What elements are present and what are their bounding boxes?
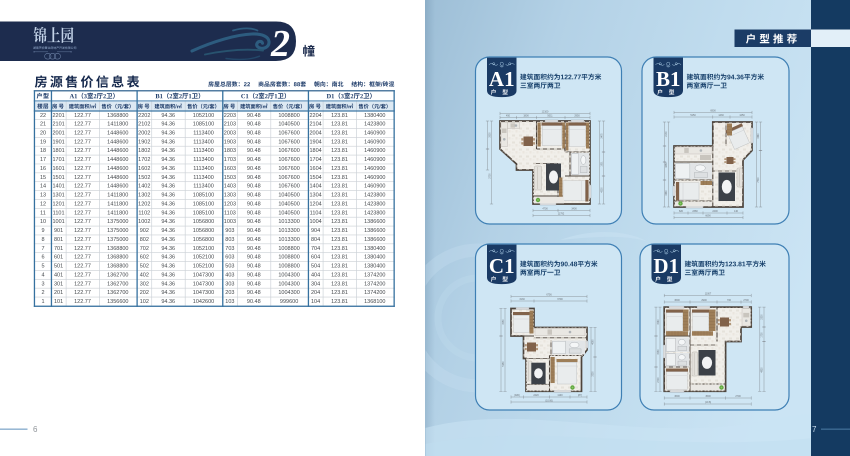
svg-text:122.77: 122.77 <box>74 264 91 270</box>
svg-text:122.77: 122.77 <box>74 219 91 225</box>
svg-text:501: 501 <box>54 264 63 270</box>
svg-text:122.77: 122.77 <box>74 246 91 252</box>
svg-text:1113400: 1113400 <box>193 175 214 181</box>
svg-text:94.36: 94.36 <box>161 175 175 181</box>
svg-text:402: 402 <box>140 272 149 278</box>
svg-text:1800: 1800 <box>523 115 529 118</box>
svg-text:1013300: 1013300 <box>278 219 299 225</box>
svg-text:1004300: 1004300 <box>278 290 299 296</box>
svg-text:1368800: 1368800 <box>107 113 128 119</box>
svg-text:2002: 2002 <box>138 131 150 137</box>
svg-text:1362700: 1362700 <box>107 272 128 278</box>
svg-text:4700: 4700 <box>542 207 548 210</box>
svg-text:1: 1 <box>41 299 44 305</box>
svg-text:1602: 1602 <box>138 166 150 172</box>
svg-text:1047300: 1047300 <box>193 281 214 287</box>
svg-text:123.81: 123.81 <box>331 255 348 261</box>
svg-text:5150: 5150 <box>690 114 696 117</box>
svg-text:1460900: 1460900 <box>364 157 385 163</box>
svg-text:1362700: 1362700 <box>107 281 128 287</box>
svg-text:D1: D1 <box>653 254 679 278</box>
svg-text:1700: 1700 <box>762 332 764 338</box>
svg-text:122.77: 122.77 <box>74 184 91 190</box>
svg-text:103: 103 <box>225 299 234 305</box>
svg-text:12100: 12100 <box>542 110 549 113</box>
svg-text:123.81: 123.81 <box>331 290 348 296</box>
svg-text:C1: C1 <box>489 254 515 278</box>
svg-text:4380: 4380 <box>666 162 668 168</box>
svg-text:2: 2 <box>270 23 290 65</box>
svg-text:2103: 2103 <box>224 122 236 128</box>
svg-text:123.81: 123.81 <box>331 281 348 287</box>
svg-text:1801: 1801 <box>52 148 64 154</box>
svg-text:1067600: 1067600 <box>278 131 299 137</box>
svg-text:94.36: 94.36 <box>161 237 175 243</box>
svg-text:450: 450 <box>506 115 511 118</box>
svg-text:1067600: 1067600 <box>278 157 299 163</box>
svg-text:1703: 1703 <box>224 157 236 163</box>
svg-text:1423800: 1423800 <box>364 201 385 207</box>
svg-text:122.77: 122.77 <box>74 255 91 261</box>
svg-text:503: 503 <box>225 264 234 270</box>
svg-text:1448600: 1448600 <box>107 166 128 172</box>
svg-text:1380400: 1380400 <box>364 113 385 119</box>
svg-text:122.77: 122.77 <box>74 228 91 234</box>
svg-text:3130: 3130 <box>519 298 525 301</box>
svg-text:1380400: 1380400 <box>364 246 385 252</box>
svg-text:1101: 1101 <box>53 210 65 216</box>
svg-text:17: 17 <box>40 157 46 163</box>
svg-text:904: 904 <box>311 228 320 234</box>
svg-text:702: 702 <box>140 246 149 252</box>
svg-text:804: 804 <box>311 237 320 243</box>
svg-text:1411800: 1411800 <box>107 193 128 199</box>
svg-text:94.36: 94.36 <box>161 113 175 119</box>
svg-text:101: 101 <box>54 299 63 305</box>
svg-text:123.81: 123.81 <box>331 139 348 145</box>
svg-text:94.36: 94.36 <box>161 166 175 172</box>
svg-text:1113400: 1113400 <box>193 131 214 137</box>
svg-text:3440: 3440 <box>758 133 760 139</box>
svg-text:1067600: 1067600 <box>278 184 299 190</box>
svg-text:1411800: 1411800 <box>107 201 128 207</box>
svg-text:1504: 1504 <box>309 175 321 181</box>
svg-text:122.77: 122.77 <box>74 272 91 278</box>
svg-text:5: 5 <box>41 264 44 270</box>
svg-text:502: 502 <box>140 264 149 270</box>
svg-text:1356600: 1356600 <box>107 299 128 305</box>
svg-text:1004: 1004 <box>309 219 321 225</box>
svg-text:123.81: 123.81 <box>331 228 348 234</box>
svg-text:1008800: 1008800 <box>278 264 299 270</box>
svg-text:1067600: 1067600 <box>278 148 299 154</box>
svg-text:1368800: 1368800 <box>107 264 128 270</box>
svg-text:1404: 1404 <box>309 184 321 190</box>
svg-text:1302: 1302 <box>138 193 150 199</box>
svg-text:11792: 11792 <box>558 212 565 215</box>
svg-text:1375000: 1375000 <box>107 237 128 243</box>
svg-text:2900: 2900 <box>701 299 707 302</box>
svg-text:2104: 2104 <box>309 122 321 128</box>
svg-text:140: 140 <box>734 210 739 213</box>
svg-text:1386600: 1386600 <box>364 219 385 225</box>
svg-text:1004300: 1004300 <box>278 281 299 287</box>
svg-text:801: 801 <box>54 237 63 243</box>
svg-text:1368800: 1368800 <box>107 246 128 252</box>
svg-text:2203: 2203 <box>224 113 236 119</box>
svg-text:1460900: 1460900 <box>364 148 385 154</box>
svg-text:123.81: 123.81 <box>331 131 348 137</box>
svg-text:803: 803 <box>225 237 234 243</box>
svg-text:20: 20 <box>40 131 46 137</box>
svg-text:122.77: 122.77 <box>74 113 91 119</box>
svg-text:1085100: 1085100 <box>193 122 214 128</box>
svg-text:2400: 2400 <box>712 210 718 213</box>
svg-text:703: 703 <box>225 246 234 252</box>
svg-text:94.36: 94.36 <box>161 281 175 287</box>
svg-text:1448600: 1448600 <box>107 175 128 181</box>
svg-text:122.77: 122.77 <box>74 166 91 172</box>
svg-text:9: 9 <box>41 228 44 234</box>
svg-text:123.81: 123.81 <box>331 264 348 270</box>
svg-text:90.48: 90.48 <box>247 272 261 278</box>
svg-text:122.77: 122.77 <box>74 148 91 154</box>
svg-text:90.48: 90.48 <box>247 219 261 225</box>
svg-text:1901: 1901 <box>52 139 64 145</box>
svg-text:94.36: 94.36 <box>161 201 175 207</box>
svg-text:1403: 1403 <box>224 184 236 190</box>
svg-text:90.48: 90.48 <box>247 139 261 145</box>
svg-text:12: 12 <box>40 201 46 207</box>
svg-text:1904: 1904 <box>309 139 321 145</box>
svg-text:1374200: 1374200 <box>364 281 385 287</box>
svg-text:1803: 1803 <box>224 148 236 154</box>
svg-text:1448600: 1448600 <box>107 157 128 163</box>
svg-text:2200: 2200 <box>762 314 764 320</box>
svg-text:903: 903 <box>225 228 234 234</box>
svg-text:2700: 2700 <box>658 377 660 383</box>
svg-text:123.81: 123.81 <box>331 113 348 119</box>
svg-text:123.81: 123.81 <box>331 299 348 305</box>
svg-text:1368800: 1368800 <box>107 255 128 261</box>
svg-text:3600: 3600 <box>674 395 680 398</box>
svg-text:1411800: 1411800 <box>107 210 128 216</box>
svg-text:1003: 1003 <box>224 219 236 225</box>
svg-text:1008800: 1008800 <box>278 246 299 252</box>
svg-text:1067600: 1067600 <box>278 166 299 172</box>
svg-text:122.77: 122.77 <box>74 157 91 163</box>
svg-text:94.36: 94.36 <box>161 219 175 225</box>
svg-text:3400: 3400 <box>571 207 577 210</box>
svg-text:1202: 1202 <box>138 201 150 207</box>
svg-text:123.81: 123.81 <box>331 219 348 225</box>
svg-text:94.36: 94.36 <box>161 210 175 216</box>
svg-text:1423800: 1423800 <box>364 122 385 128</box>
svg-text:1368100: 1368100 <box>364 299 385 305</box>
svg-text:4060: 4060 <box>593 339 595 345</box>
svg-text:123.81: 123.81 <box>331 246 348 252</box>
svg-text:1380400: 1380400 <box>364 264 385 270</box>
svg-text:3: 3 <box>41 281 44 287</box>
svg-text:2102: 2102 <box>138 122 150 128</box>
svg-text:404: 404 <box>311 272 320 278</box>
svg-text:123.81: 123.81 <box>331 184 348 190</box>
svg-text:1448600: 1448600 <box>107 131 128 137</box>
svg-text:1008800: 1008800 <box>278 255 299 261</box>
svg-text:6690: 6690 <box>705 215 711 218</box>
svg-text:2700: 2700 <box>743 299 749 302</box>
svg-text:820: 820 <box>679 210 684 213</box>
svg-text:90.48: 90.48 <box>247 246 261 252</box>
svg-text:7: 7 <box>41 246 44 252</box>
svg-text:90.48: 90.48 <box>247 290 261 296</box>
svg-text:1002: 1002 <box>138 219 150 225</box>
svg-text:94.36: 94.36 <box>161 255 175 261</box>
svg-text:4500: 4500 <box>705 395 711 398</box>
svg-text:303: 303 <box>225 281 234 287</box>
svg-text:1303: 1303 <box>224 193 236 199</box>
svg-text:90.48: 90.48 <box>247 122 261 128</box>
svg-text:1304: 1304 <box>309 193 321 199</box>
svg-text:7: 7 <box>812 425 817 434</box>
svg-text:1085100: 1085100 <box>193 193 214 199</box>
svg-text:1702: 1702 <box>138 157 150 163</box>
svg-text:18: 18 <box>40 148 46 154</box>
svg-text:1301: 1301 <box>52 193 64 199</box>
svg-text:5011: 5011 <box>547 115 553 118</box>
svg-text:123.81: 123.81 <box>331 210 348 216</box>
svg-text:2950: 2950 <box>574 115 580 118</box>
svg-text:90.48: 90.48 <box>247 228 261 234</box>
svg-text:204: 204 <box>311 290 320 296</box>
svg-text:1801: 1801 <box>601 161 603 167</box>
svg-text:2201: 2201 <box>52 113 64 119</box>
svg-text:6: 6 <box>41 255 44 261</box>
svg-text:1402: 1402 <box>138 184 150 190</box>
svg-text:122.77: 122.77 <box>74 237 91 243</box>
svg-text:6790: 6790 <box>557 298 563 301</box>
svg-text:1423800: 1423800 <box>364 210 385 216</box>
svg-text:1067600: 1067600 <box>278 139 299 145</box>
svg-text:6900: 6900 <box>710 109 716 112</box>
svg-text:3080: 3080 <box>503 319 505 325</box>
svg-text:11007: 11007 <box>705 292 712 295</box>
svg-text:122.77: 122.77 <box>74 122 91 128</box>
svg-text:202: 202 <box>140 290 149 296</box>
svg-text:1047300: 1047300 <box>193 290 214 296</box>
svg-text:2: 2 <box>41 290 44 296</box>
svg-text:201: 201 <box>54 290 63 296</box>
svg-text:B1: B1 <box>656 67 681 91</box>
svg-text:1113400: 1113400 <box>193 139 214 145</box>
svg-text:1052100: 1052100 <box>193 246 214 252</box>
svg-text:13: 13 <box>40 193 46 199</box>
svg-text:1203: 1203 <box>224 201 236 207</box>
svg-text:6: 6 <box>33 425 38 434</box>
svg-text:1052100: 1052100 <box>193 255 214 261</box>
svg-text:999600: 999600 <box>280 299 298 305</box>
svg-text:1001: 1001 <box>52 219 64 225</box>
svg-text:123.81: 123.81 <box>331 193 348 199</box>
svg-text:701: 701 <box>54 246 63 252</box>
svg-text:1362700: 1362700 <box>107 290 128 296</box>
svg-text:1411800: 1411800 <box>107 122 128 128</box>
svg-text:123.81: 123.81 <box>331 122 348 128</box>
svg-text:15: 15 <box>40 175 46 181</box>
svg-text:1102: 1102 <box>138 210 150 216</box>
svg-text:104: 104 <box>311 299 320 305</box>
svg-text:602: 602 <box>140 255 149 261</box>
svg-text:94.36: 94.36 <box>161 264 175 270</box>
svg-text:3475: 3475 <box>601 133 603 139</box>
svg-text:122.77: 122.77 <box>74 131 91 137</box>
svg-text:2700: 2700 <box>489 173 491 179</box>
svg-text:700: 700 <box>727 299 732 302</box>
svg-text:1374200: 1374200 <box>364 272 385 278</box>
svg-text:1448600: 1448600 <box>107 148 128 154</box>
svg-text:1375000: 1375000 <box>107 219 128 225</box>
svg-text:22: 22 <box>40 113 46 119</box>
svg-text:1040500: 1040500 <box>278 210 299 216</box>
svg-text:94.36: 94.36 <box>161 228 175 234</box>
svg-text:1380400: 1380400 <box>364 255 385 261</box>
svg-text:2700: 2700 <box>735 395 741 398</box>
svg-text:90.48: 90.48 <box>247 237 261 243</box>
svg-text:102: 102 <box>140 299 149 305</box>
svg-text:1386600: 1386600 <box>364 237 385 243</box>
svg-text:5280: 5280 <box>503 361 505 367</box>
svg-text:123.81: 123.81 <box>331 166 348 172</box>
svg-text:94.36: 94.36 <box>161 131 175 137</box>
svg-text:1013300: 1013300 <box>278 237 299 243</box>
svg-text:94.36: 94.36 <box>161 139 175 145</box>
svg-text:1040500: 1040500 <box>278 193 299 199</box>
svg-text:1085100: 1085100 <box>193 210 214 216</box>
svg-text:(87): (87) <box>578 394 582 397</box>
svg-text:122.77: 122.77 <box>74 193 91 199</box>
svg-text:1085100: 1085100 <box>193 201 214 207</box>
svg-text:203: 203 <box>225 290 234 296</box>
svg-text:1250: 1250 <box>739 114 745 117</box>
svg-text:1460900: 1460900 <box>364 131 385 137</box>
svg-text:2004: 2004 <box>309 131 321 137</box>
svg-text:(920): (920) <box>514 394 520 397</box>
svg-text:90.48: 90.48 <box>247 131 261 137</box>
svg-text:8: 8 <box>41 237 44 243</box>
svg-text:604: 604 <box>311 255 320 261</box>
svg-text:122.77: 122.77 <box>74 290 91 296</box>
svg-text:16: 16 <box>40 166 46 172</box>
svg-text:2001: 2001 <box>52 131 64 137</box>
svg-text:3060: 3060 <box>658 349 660 355</box>
svg-text:1067600: 1067600 <box>278 175 299 181</box>
svg-text:2420: 2420 <box>533 394 539 397</box>
svg-text:123.81: 123.81 <box>331 272 348 278</box>
svg-text:1460900: 1460900 <box>364 139 385 145</box>
svg-text:1047300: 1047300 <box>193 272 214 278</box>
svg-text:4300: 4300 <box>601 187 603 193</box>
svg-text:90.48: 90.48 <box>247 255 261 261</box>
svg-text:1375000: 1375000 <box>107 228 128 234</box>
svg-text:10: 10 <box>40 219 46 225</box>
svg-text:123.81: 123.81 <box>331 201 348 207</box>
svg-text:2204: 2204 <box>309 113 321 119</box>
svg-text:123.81: 123.81 <box>331 157 348 163</box>
svg-text:(10.06): (10.06) <box>545 399 553 402</box>
svg-text:(10.8): (10.8) <box>705 401 711 404</box>
svg-text:4820: 4820 <box>762 367 764 373</box>
svg-text:1204: 1204 <box>309 201 321 207</box>
svg-text:90.48: 90.48 <box>247 201 261 207</box>
svg-text:122.77: 122.77 <box>74 210 91 216</box>
svg-text:704: 704 <box>311 246 320 252</box>
svg-text:123.81: 123.81 <box>331 175 348 181</box>
svg-text:90.48: 90.48 <box>247 264 261 270</box>
svg-text:19: 19 <box>40 139 46 145</box>
svg-text:3600: 3600 <box>674 299 680 302</box>
svg-text:11: 11 <box>40 210 46 216</box>
svg-text:1501: 1501 <box>52 175 64 181</box>
svg-text:1460900: 1460900 <box>364 166 385 172</box>
svg-text:2130: 2130 <box>666 131 668 137</box>
svg-text:A1: A1 <box>489 67 515 91</box>
svg-text:1460900: 1460900 <box>364 184 385 190</box>
svg-text:1103: 1103 <box>224 210 236 216</box>
svg-text:1040500: 1040500 <box>278 201 299 207</box>
svg-text:90.48: 90.48 <box>247 184 261 190</box>
svg-text:1701: 1701 <box>52 157 64 163</box>
svg-text:21: 21 <box>40 122 46 128</box>
svg-text:1802: 1802 <box>138 148 150 154</box>
svg-text:802: 802 <box>140 237 149 243</box>
svg-text:94.36: 94.36 <box>161 299 175 305</box>
svg-text:1113400: 1113400 <box>193 148 214 154</box>
svg-text:94.36: 94.36 <box>161 148 175 154</box>
svg-text:1113400: 1113400 <box>193 184 214 190</box>
svg-text:1052100: 1052100 <box>193 113 214 119</box>
svg-text:302: 302 <box>140 281 149 287</box>
svg-text:3040: 3040 <box>658 319 660 325</box>
svg-text:1903: 1903 <box>224 139 236 145</box>
svg-text:90.48: 90.48 <box>247 157 261 163</box>
svg-text:1386600: 1386600 <box>364 228 385 234</box>
svg-text:1601: 1601 <box>52 166 64 172</box>
svg-text:1113400: 1113400 <box>193 157 214 163</box>
svg-text:1448600: 1448600 <box>107 139 128 145</box>
svg-text:90.48: 90.48 <box>247 299 261 305</box>
svg-text:1502: 1502 <box>138 175 150 181</box>
svg-text:1902: 1902 <box>138 139 150 145</box>
svg-text:401: 401 <box>54 272 63 278</box>
svg-text:902: 902 <box>140 228 149 234</box>
svg-text:1052100: 1052100 <box>193 264 214 270</box>
svg-text:2202: 2202 <box>138 113 150 119</box>
svg-text:1604: 1604 <box>309 166 321 172</box>
svg-text:1603: 1603 <box>224 166 236 172</box>
svg-text:504: 504 <box>311 264 320 270</box>
svg-text:6756: 6756 <box>546 293 552 296</box>
svg-text:2003: 2003 <box>224 131 236 137</box>
svg-text:1113400: 1113400 <box>193 166 214 172</box>
svg-text:1056800: 1056800 <box>193 237 214 243</box>
svg-text:1448600: 1448600 <box>107 184 128 190</box>
svg-text:90.48: 90.48 <box>247 148 261 154</box>
svg-text:1201: 1201 <box>52 201 64 207</box>
svg-text:1104: 1104 <box>310 210 322 216</box>
svg-text:122.77: 122.77 <box>74 139 91 145</box>
svg-text:3900: 3900 <box>489 132 491 138</box>
svg-text:1704: 1704 <box>309 157 321 163</box>
